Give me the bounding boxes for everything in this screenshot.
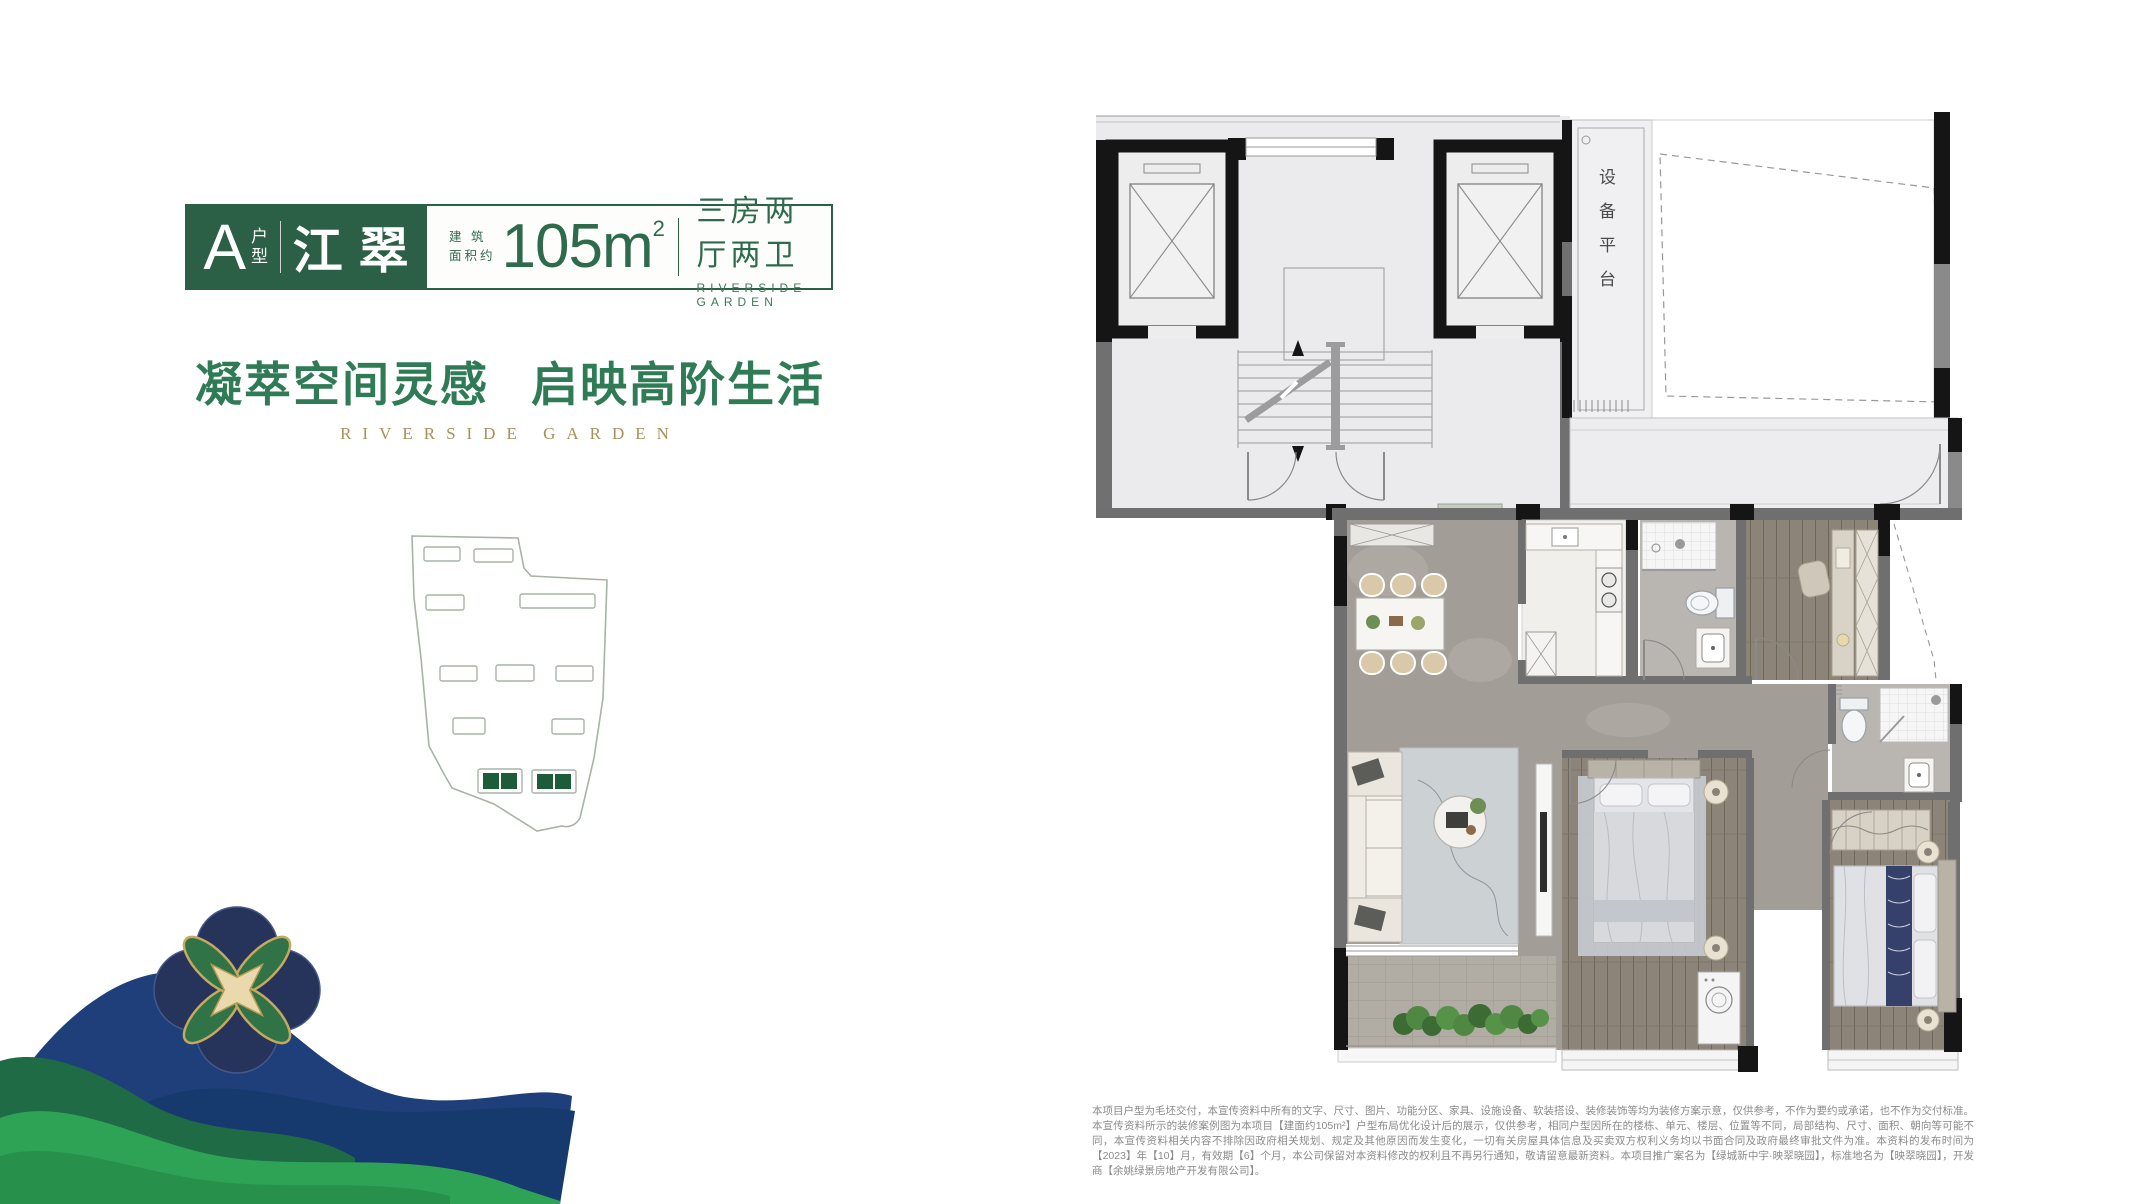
unit-name: 江翠 xyxy=(293,211,425,283)
floor-plan xyxy=(1088,100,1983,1100)
unit-type-letter: A xyxy=(203,215,246,279)
elevator-left xyxy=(1112,146,1232,339)
site-plan xyxy=(390,522,646,846)
slogan-part1: 凝萃空间灵感 xyxy=(195,358,489,411)
room-layout-text: 三房两厅两卫 xyxy=(697,186,831,274)
area-exponent: 2 xyxy=(653,218,664,278)
area-label-line1: 建 筑 xyxy=(449,228,496,247)
landscape-art xyxy=(0,856,580,1204)
room-layout: 三房两厅两卫 RIVERSIDE GARDEN xyxy=(697,186,831,309)
area-value: 105m 2 xyxy=(502,216,664,278)
area-label: 建 筑 面积约 xyxy=(449,228,496,266)
badge-vertical-rule xyxy=(678,218,679,276)
area-label-line2: 面积约 xyxy=(449,247,496,266)
badge-divider xyxy=(280,221,281,273)
elevator-right xyxy=(1440,146,1560,339)
area-number: 105m xyxy=(502,216,653,278)
poster-canvas: A 户型 江翠 建 筑 面积约 105m 2 三房两厅两卫 RIVERSIDE … xyxy=(0,0,2140,1204)
unit-badge: A 户型 江翠 建 筑 面积约 105m 2 三房两厅两卫 RIVERSIDE … xyxy=(185,204,833,290)
entry-corridor xyxy=(1570,418,1962,514)
unit-badge-green-box: A 户型 江翠 xyxy=(185,204,427,290)
room-layout-subtext: RIVERSIDE GARDEN xyxy=(697,281,831,309)
slogan-part2: 启映高阶生活 xyxy=(531,358,825,411)
void-open-area xyxy=(1652,112,1950,418)
equipment-platform-label: 设备平台 xyxy=(1593,168,1618,304)
disclaimer-text: 本项目户型为毛坯交付，本宣传资料中所有的文字、尺寸、图片、功能分区、家具、设施设… xyxy=(1092,1104,1974,1179)
unit-badge-white-box: 建 筑 面积约 105m 2 三房两厅两卫 RIVERSIDE GARDEN xyxy=(427,204,833,290)
slogan-subtitle: RIVERSIDE GARDEN xyxy=(165,424,855,444)
unit-type-suffix: 户型 xyxy=(251,227,270,266)
slogan-headline: 凝萃空间灵感启映高阶生活 xyxy=(165,346,855,415)
